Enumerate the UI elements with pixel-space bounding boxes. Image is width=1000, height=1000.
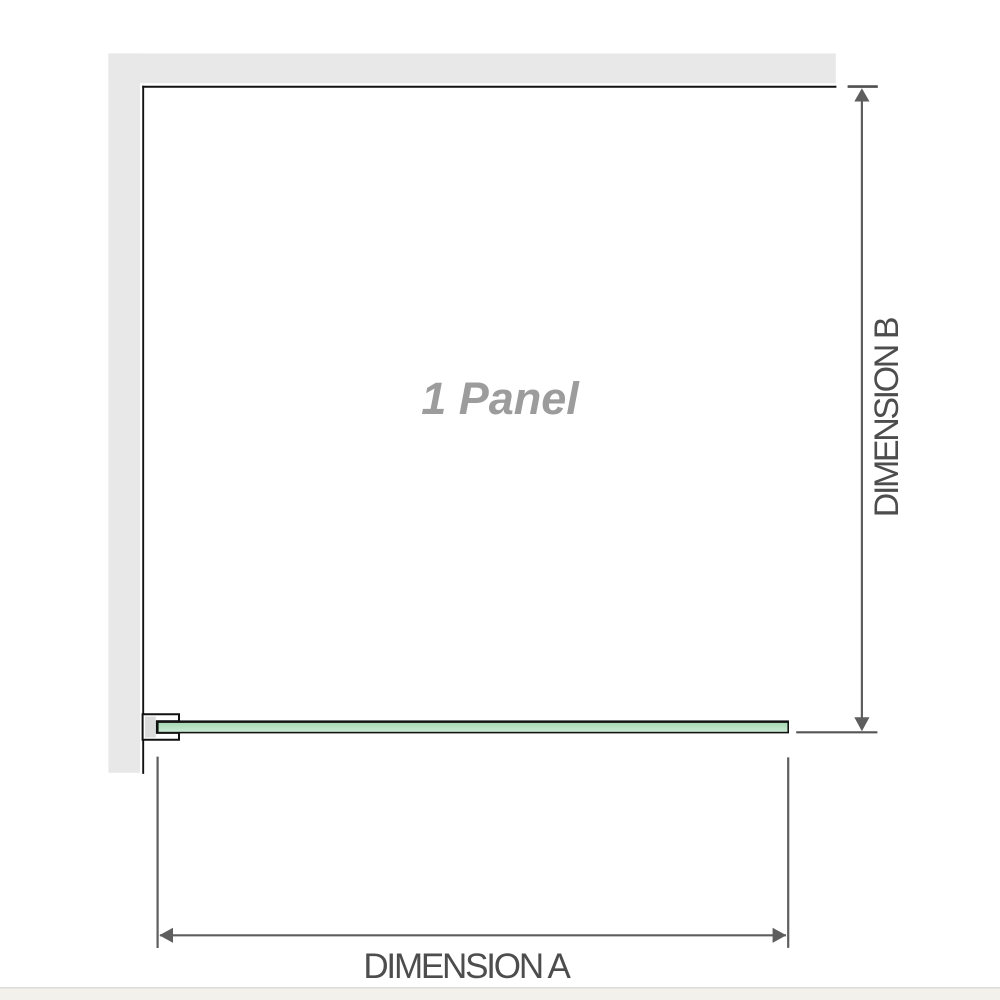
svg-text:1 Panel: 1 Panel xyxy=(421,373,580,424)
svg-text:DIMENSION A: DIMENSION A xyxy=(363,947,571,986)
svg-text:DIMENSION B: DIMENSION B xyxy=(868,318,906,517)
